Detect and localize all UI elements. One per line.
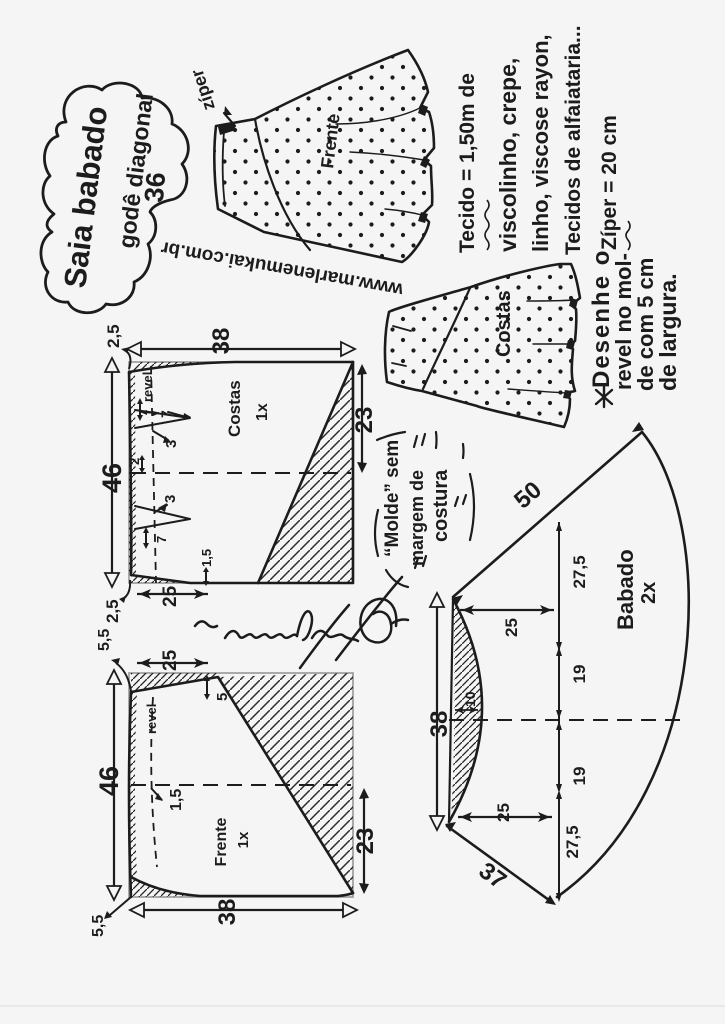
svg-text:Costas: Costas xyxy=(493,290,515,357)
svg-text:23: 23 xyxy=(352,828,379,855)
svg-text:1x: 1x xyxy=(235,831,252,848)
svg-text:25: 25 xyxy=(160,649,181,671)
svg-text:Tecidos de alfaiataria...: Tecidos de alfaiataria... xyxy=(562,25,585,255)
svg-text:36: 36 xyxy=(139,171,172,204)
svg-text:costura: costura xyxy=(430,469,452,542)
svg-text:19: 19 xyxy=(570,665,589,684)
svg-text:2x: 2x xyxy=(638,582,660,604)
svg-text:3: 3 xyxy=(162,495,179,503)
svg-text:1,5: 1,5 xyxy=(199,549,214,567)
svg-text:25: 25 xyxy=(502,618,521,637)
svg-text:5: 5 xyxy=(214,693,231,701)
svg-text:Zíper = 20 cm: Zíper = 20 cm xyxy=(598,115,621,250)
svg-text:7: 7 xyxy=(154,536,169,543)
svg-text:2: 2 xyxy=(127,458,142,465)
svg-text:Tecido = 1,50m de: Tecido = 1,50m de xyxy=(456,73,479,253)
svg-text:Babado: Babado xyxy=(613,549,638,630)
svg-text:1,5: 1,5 xyxy=(168,789,185,811)
svg-text:“Molde” sem: “Molde” sem xyxy=(382,440,403,557)
svg-text:5,5: 5,5 xyxy=(96,629,113,651)
svg-text:38: 38 xyxy=(208,328,235,355)
svg-text:Frente: Frente xyxy=(213,817,230,866)
svg-text:revel: revel xyxy=(144,704,159,734)
svg-text:revel: revel xyxy=(140,372,155,402)
svg-text:7: 7 xyxy=(158,410,174,418)
svg-text:linho, viscose rayon,: linho, viscose rayon, xyxy=(528,34,553,252)
svg-text:38: 38 xyxy=(426,711,453,738)
svg-text:2,5: 2,5 xyxy=(103,599,122,623)
svg-text:19: 19 xyxy=(570,767,589,786)
svg-text:27,5: 27,5 xyxy=(563,825,582,858)
svg-text:23: 23 xyxy=(351,407,378,434)
svg-text:3: 3 xyxy=(163,440,180,448)
svg-text:38: 38 xyxy=(214,899,241,926)
svg-text:2,5: 2,5 xyxy=(104,324,123,348)
svg-text:46: 46 xyxy=(94,766,124,796)
svg-text:10: 10 xyxy=(462,691,478,707)
svg-text:25: 25 xyxy=(160,585,181,607)
svg-text:Costas: Costas xyxy=(225,380,244,437)
svg-text:46: 46 xyxy=(97,463,127,493)
svg-text:1x: 1x xyxy=(254,403,271,421)
svg-text:de largura.: de largura. xyxy=(655,273,681,391)
svg-text:27,5: 27,5 xyxy=(570,555,589,588)
svg-text:viscolinho, crepe,: viscolinho, crepe, xyxy=(495,58,521,252)
svg-text:25: 25 xyxy=(494,803,513,822)
svg-text:margem de: margem de xyxy=(407,470,427,566)
